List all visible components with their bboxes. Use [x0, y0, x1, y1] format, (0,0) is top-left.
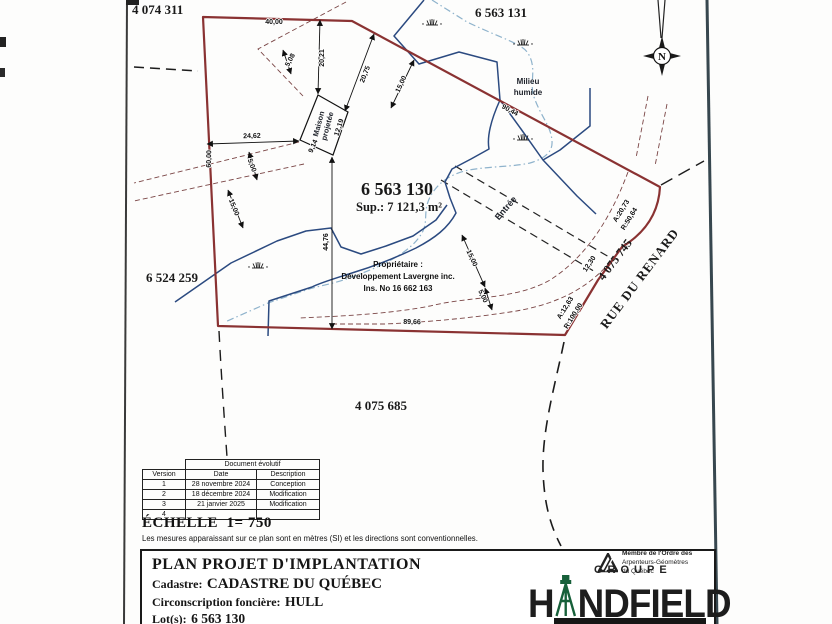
svg-text:12,19: 12,19 — [334, 118, 346, 137]
svg-text:5,00: 5,00 — [246, 158, 257, 173]
cadastre-value: CADASTRE DU QUÉBEC — [207, 576, 382, 592]
svg-text:Propriétaire :: Propriétaire : — [373, 260, 423, 269]
svg-text:90,44: 90,44 — [500, 103, 519, 117]
revision-table: Document évolutif Version Date Descripti… — [142, 459, 320, 520]
svg-text:Ins. No 16 662 163: Ins. No 16 662 163 — [364, 284, 433, 293]
svg-text:Développement Lavergne inc.: Développement Lavergne inc. — [341, 272, 454, 281]
lots-value: 6 563 130 — [191, 611, 245, 624]
lot-label-4075685: 4 075 685 — [355, 398, 408, 413]
svg-text:5,08: 5,08 — [284, 53, 297, 68]
svg-text:12,30: 12,30 — [582, 255, 598, 274]
house-label: Maison projetée — [311, 109, 336, 142]
svg-text:20,21: 20,21 — [319, 49, 326, 67]
lot-area-label: Sup.: 7 121,3 m² — [356, 200, 442, 214]
lot-label-4075745: 4 075 745 — [595, 236, 635, 283]
scan-artifact — [0, 68, 5, 77]
scale-label: ÉCHELLE 1= 750 — [142, 515, 272, 532]
col-header-version: Version — [143, 470, 186, 480]
measurement-note: Les mesures apparaissant sur ce plan son… — [142, 534, 478, 543]
svg-text:44,76: 44,76 — [323, 233, 330, 251]
circonscription-label: Circonscription foncière: — [152, 595, 281, 609]
svg-text:89,66: 89,66 — [403, 319, 421, 326]
street-name-label: RUE DU RENARD — [597, 225, 682, 331]
owner-label: Propriétaire : Développement Lavergne in… — [341, 260, 454, 293]
table-row: 2 18 décembre 2024 Modification — [143, 490, 320, 500]
table-row: 1 28 novembre 2024 Conception — [143, 480, 320, 490]
lot-label-6563130: 6 563 130 — [361, 179, 433, 199]
svg-text:15,00: 15,00 — [395, 75, 409, 94]
lots-label: Lot(s): — [152, 612, 187, 624]
logo-underline-bar — [554, 618, 706, 624]
scan-artifact — [0, 37, 6, 47]
svg-text:24,62: 24,62 — [243, 133, 261, 141]
surveyor-tripod-icon — [555, 575, 577, 624]
page-left-edge — [124, 0, 127, 624]
svg-text:60,00: 60,00 — [206, 150, 214, 168]
plan-title: PLAN PROJET D'IMPLANTATION — [152, 556, 421, 574]
wetland-label: humide — [514, 88, 543, 97]
lot-label-4074311: 4 074 311 — [132, 2, 183, 17]
svg-text:9,14: 9,14 — [308, 139, 320, 154]
logo-handfield: H NDFIELD — [528, 575, 731, 624]
svg-text:40,00: 40,00 — [265, 19, 283, 26]
col-header-description: Description — [257, 470, 320, 480]
north-arrow-icon: N — [643, 0, 681, 76]
driveway-dashed — [441, 166, 609, 273]
lot-label-6524259: 6 524 259 — [146, 270, 199, 285]
north-letter: N — [658, 51, 666, 63]
scanned-survey-plan-page: N 4 074 311 6 563 131 6 563 130 Sup.: 7 … — [0, 0, 832, 624]
plan-drawing-svg: N 4 074 311 6 563 131 6 563 130 Sup.: 7 … — [0, 0, 832, 624]
entrance-label: Entrée — [493, 194, 519, 222]
title-block: PLAN PROJET D'IMPLANTATION Cadastre: CAD… — [140, 549, 716, 624]
revision-table-title: Document évolutif — [186, 460, 320, 470]
circonscription-value: HULL — [285, 594, 323, 609]
col-header-date: Date — [186, 470, 257, 480]
svg-text:15,00: 15,00 — [227, 198, 240, 217]
wetland-label: Milieu — [517, 77, 540, 86]
svg-text:5,00: 5,00 — [476, 289, 488, 304]
svg-text:15,00: 15,00 — [464, 249, 478, 268]
page-right-edge — [707, 0, 717, 624]
lot-label-6563131: 6 563 131 — [475, 5, 527, 20]
table-row: 3 21 janvier 2025 Modification — [143, 500, 320, 510]
cadastre-label: Cadastre: — [152, 577, 202, 591]
